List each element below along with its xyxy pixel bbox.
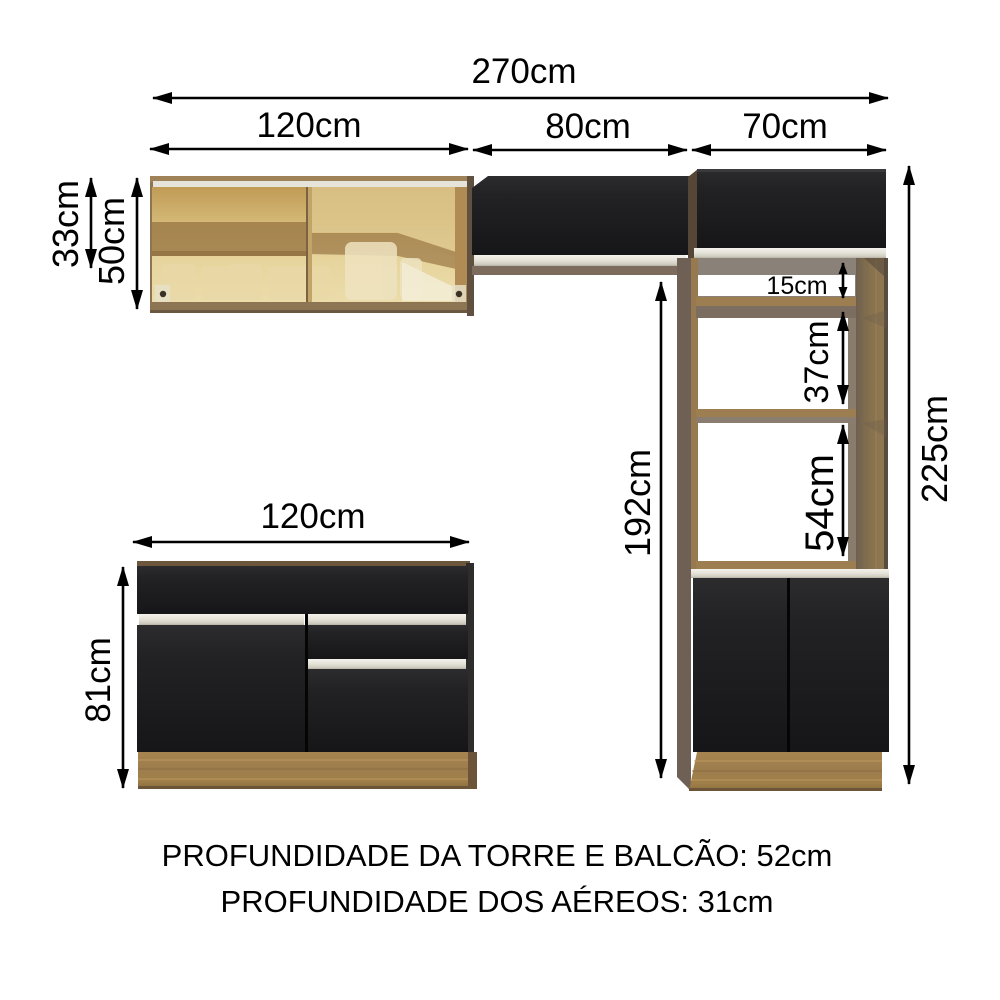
svg-text:70cm: 70cm	[742, 107, 828, 146]
svg-text:192cm: 192cm	[617, 449, 658, 557]
svg-text:80cm: 80cm	[545, 107, 631, 146]
svg-text:54cm: 54cm	[798, 454, 842, 552]
svg-text:81cm: 81cm	[79, 637, 118, 723]
svg-text:120cm: 120cm	[256, 106, 361, 145]
svg-text:15cm: 15cm	[766, 272, 827, 300]
svg-text:33cm: 33cm	[45, 180, 86, 268]
svg-text:225cm: 225cm	[914, 395, 955, 503]
svg-text:270cm: 270cm	[471, 52, 576, 91]
svg-text:50cm: 50cm	[91, 197, 132, 285]
svg-text:PROFUNDIDADE DA TORRE E BALCÃO: PROFUNDIDADE DA TORRE E BALCÃO: 52cm	[162, 838, 833, 873]
svg-text:37cm: 37cm	[798, 320, 836, 403]
svg-text:120cm: 120cm	[260, 497, 365, 536]
svg-text:PROFUNDIDADE DOS AÉREOS: 31cm: PROFUNDIDADE DOS AÉREOS: 31cm	[221, 884, 774, 919]
